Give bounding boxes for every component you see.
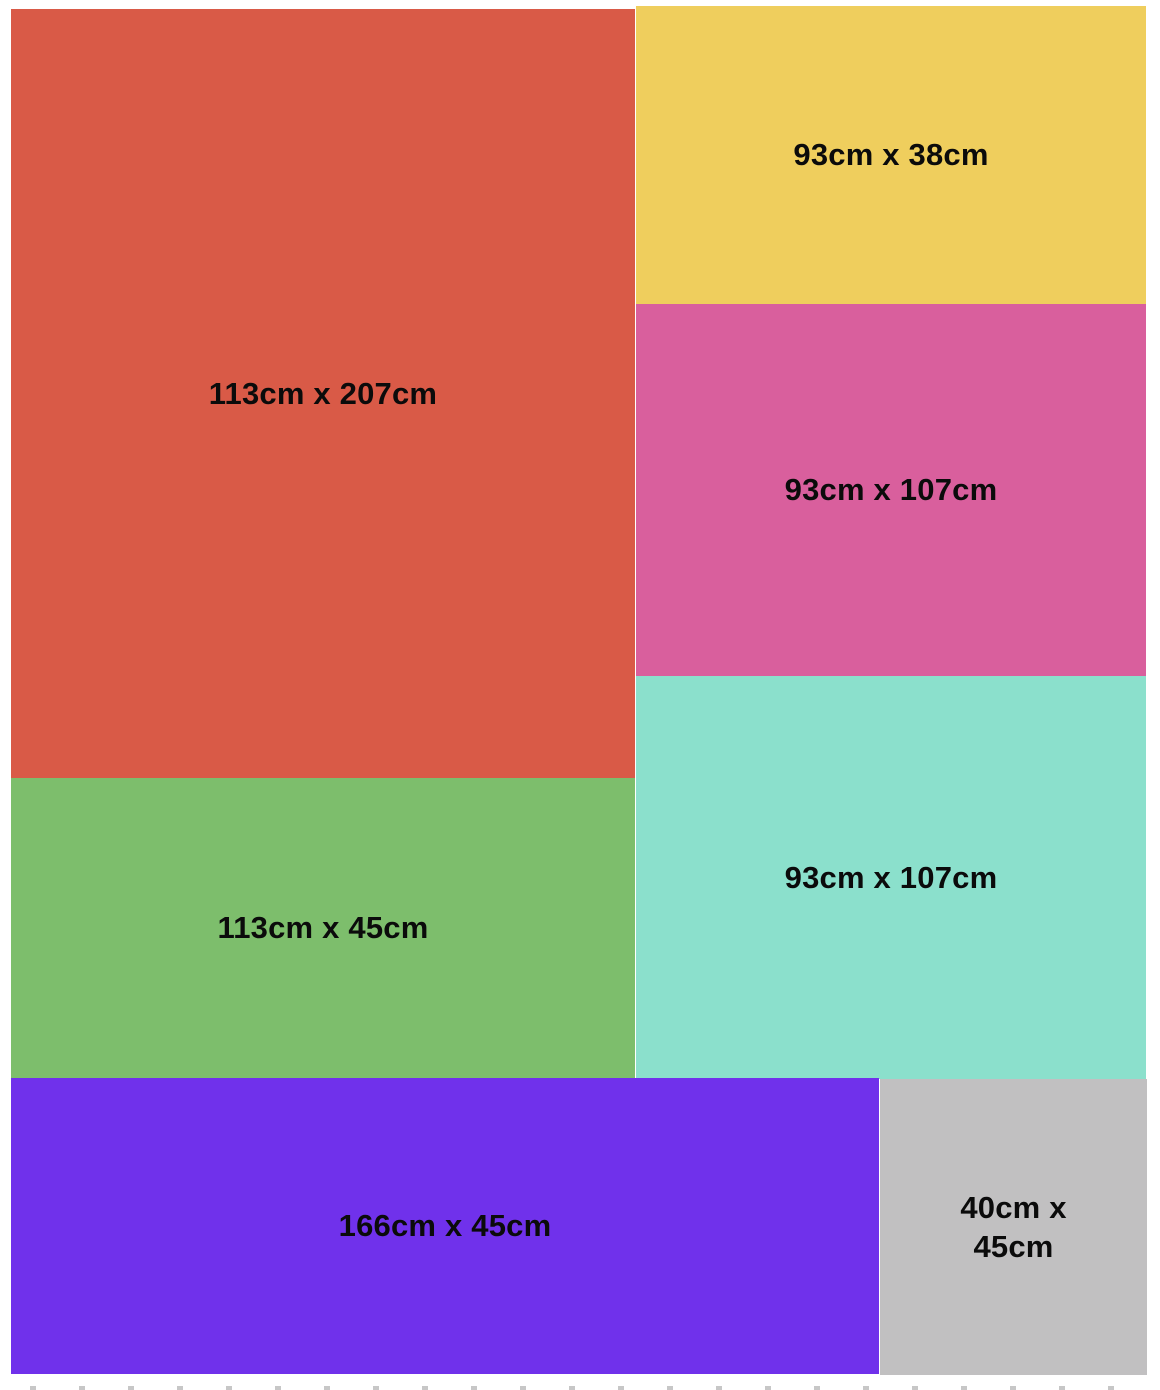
piece-dimensions-label: 93cm x 38cm: [738, 135, 1043, 174]
cutting-layout-canvas: 113cm x 207cm93cm x 38cm93cm x 107cm93cm…: [0, 0, 1160, 1390]
piece-113x207: 113cm x 207cm: [11, 9, 635, 778]
piece-40x45: 40cm x 45cm: [880, 1079, 1147, 1375]
piece-93x107: 93cm x 107cm: [636, 676, 1146, 1079]
piece-113x45: 113cm x 45cm: [11, 778, 635, 1078]
piece-dimensions-label: 40cm x 45cm: [880, 1188, 1147, 1267]
piece-dimensions-label: 166cm x 45cm: [284, 1206, 607, 1245]
piece-166x45: 166cm x 45cm: [11, 1078, 879, 1374]
piece-dimensions-label: 93cm x 107cm: [730, 858, 1053, 897]
piece-dimensions-label: 93cm x 107cm: [730, 470, 1053, 509]
piece-93x38: 93cm x 38cm: [636, 6, 1146, 304]
sheet-dashed-border-bottom: [6, 1386, 1154, 1390]
piece-dimensions-label: 113cm x 45cm: [163, 908, 484, 947]
piece-93x107: 93cm x 107cm: [636, 304, 1146, 676]
piece-dimensions-label: 113cm x 207cm: [154, 374, 492, 413]
